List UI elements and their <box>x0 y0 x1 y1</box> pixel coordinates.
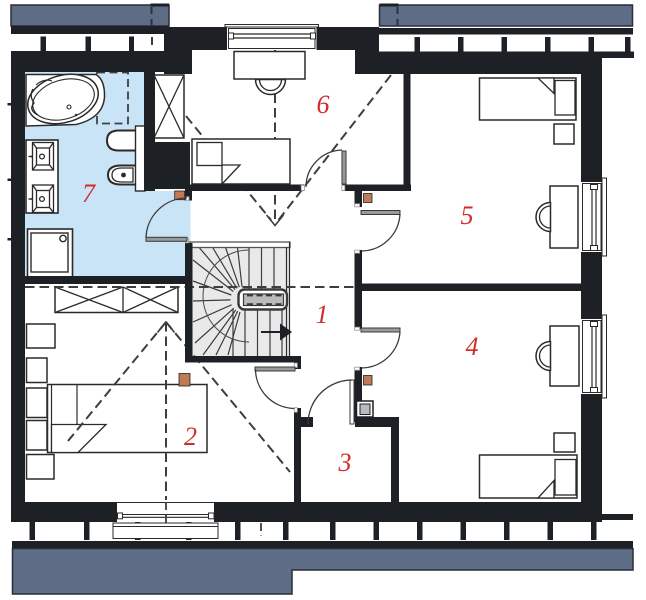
svg-text:5: 5 <box>461 201 474 230</box>
svg-text:4: 4 <box>466 332 479 361</box>
svg-text:2: 2 <box>184 422 197 451</box>
svg-text:6: 6 <box>317 90 330 119</box>
svg-text:3: 3 <box>338 448 352 477</box>
svg-text:1: 1 <box>316 300 329 329</box>
svg-text:7: 7 <box>82 179 96 208</box>
